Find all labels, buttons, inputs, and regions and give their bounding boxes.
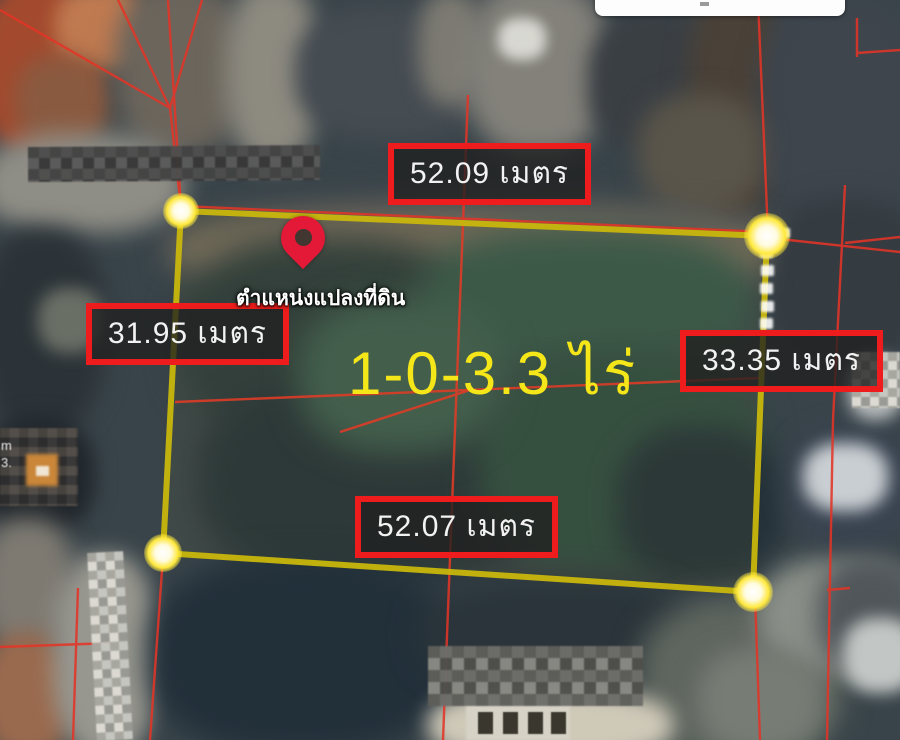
blurred-label-top-left: [28, 145, 320, 182]
vertex-marker-bottom-left: [144, 534, 182, 572]
cutoff-white-panel[interactable]: [595, 0, 845, 16]
texture-blob: [148, 558, 453, 740]
vertex-marker-bottom-right: [733, 572, 773, 612]
roof-window: [551, 712, 566, 734]
map-viewport: m 3. 52.09 เมตร 31.95 เมตร 33.35 เมตร 52…: [0, 0, 900, 740]
measurement-value-right: 33.35 เมตร: [702, 344, 861, 377]
texture-blob: [758, 0, 900, 230]
map-pin-hole: [295, 229, 312, 246]
measurement-value-top: 52.09 เมตร: [410, 157, 569, 190]
measurement-label-top: 52.09 เมตร: [388, 143, 591, 205]
panel-mark: [700, 2, 709, 6]
texture-blob: [638, 95, 763, 210]
texture-blob: [618, 428, 783, 583]
roof-window: [478, 712, 493, 734]
measurement-value-left: 31.95 เมตร: [108, 317, 267, 350]
blurred-area-bottom: [428, 646, 643, 706]
vertex-marker-top-right: [744, 213, 790, 259]
area-size-label: 1-0-3.3 ไร่: [348, 326, 637, 421]
measurement-label-right: 33.35 เมตร: [680, 330, 883, 392]
texture-blob: [698, 648, 823, 740]
location-pin: [281, 216, 325, 260]
measurement-value-bottom: 52.07 เมตร: [377, 510, 536, 543]
poi-fragment-bottom: 3.: [1, 455, 12, 470]
texture-blob: [843, 618, 900, 693]
roof-window: [528, 712, 543, 734]
measurement-label-bottom: 52.07 เมตร: [355, 496, 558, 558]
vertex-marker-top-left: [163, 193, 199, 229]
texture-blob: [498, 18, 546, 60]
poi-fragment-top: m: [1, 438, 12, 453]
roof-window: [503, 712, 518, 734]
texture-blob: [803, 443, 888, 511]
pin-caption: ตำแหน่งแปลงที่ดิน: [236, 282, 405, 315]
